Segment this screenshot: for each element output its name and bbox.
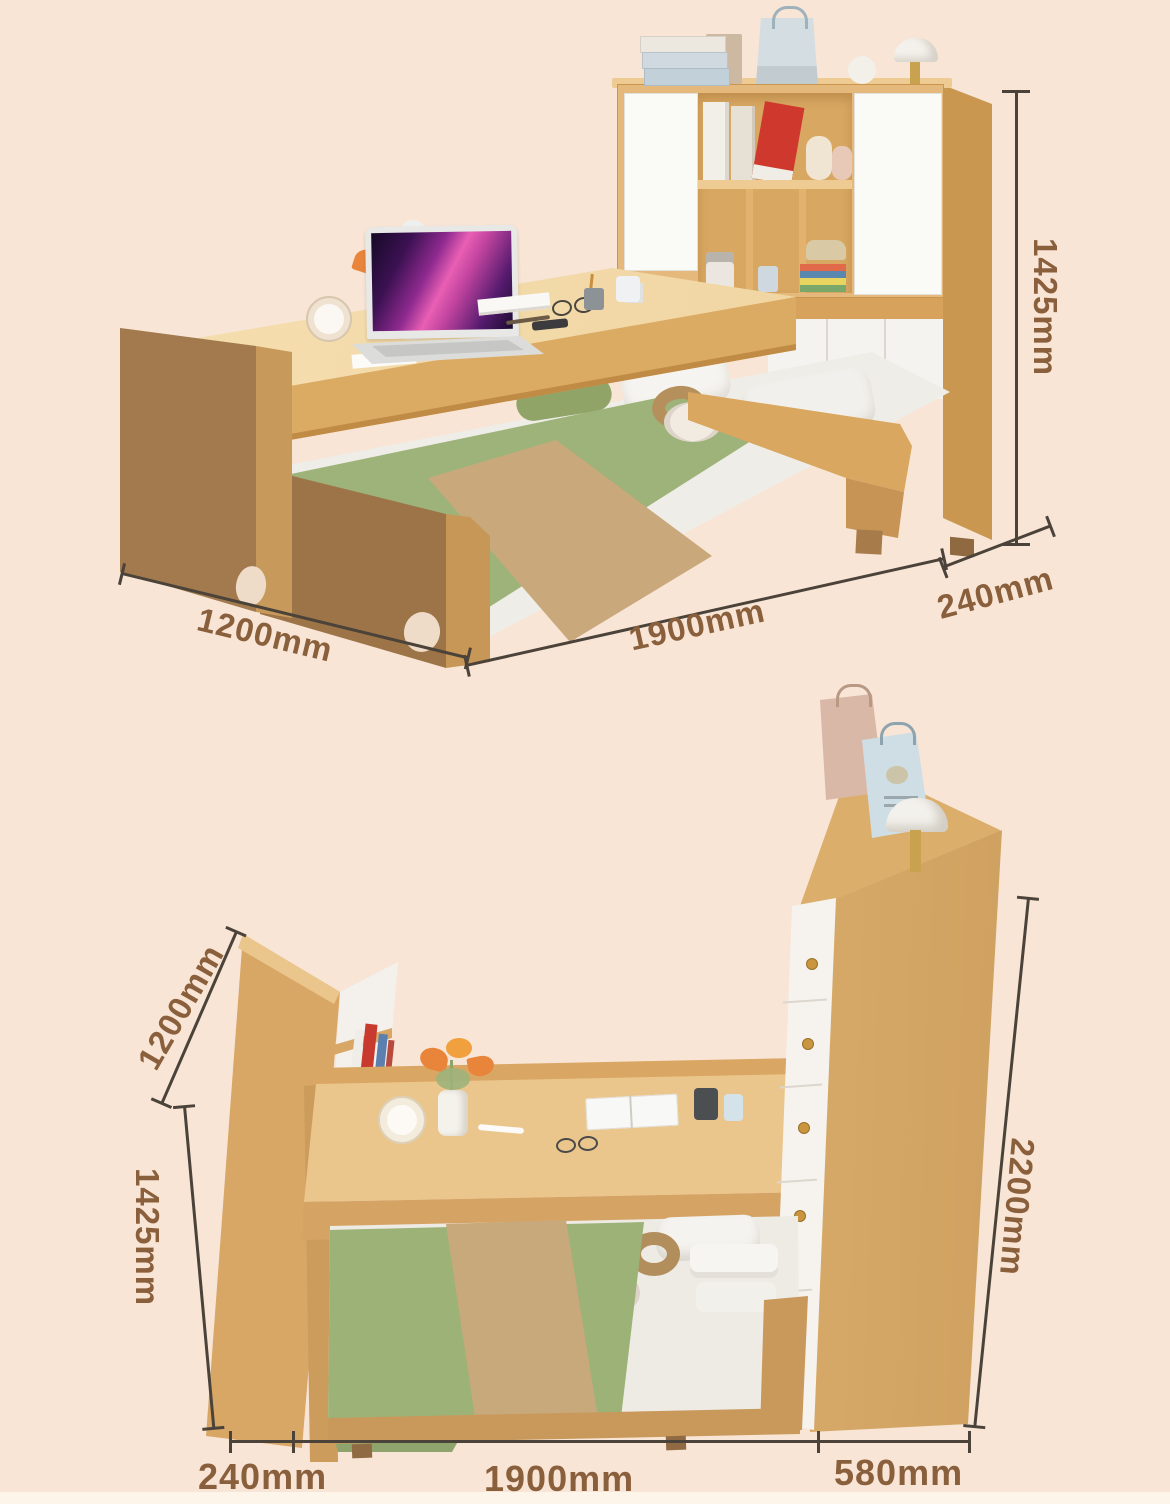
flower-leaves	[436, 1068, 470, 1090]
dimension-label-shelf-height: 1425mm	[128, 1168, 166, 1306]
flower-orange	[446, 1038, 472, 1058]
product-dimension-diagram: 1425mm 1200mm 1900mm 240mm	[0, 0, 1170, 1504]
book-stack-colorful	[800, 264, 846, 292]
clock-face	[314, 304, 344, 334]
drawer-knob	[798, 1122, 810, 1134]
dimension-tick	[292, 1431, 295, 1453]
lamp-stem	[910, 62, 920, 84]
gift-bag-handle	[836, 684, 872, 707]
bed-foot	[352, 1444, 372, 1459]
jar-dark	[694, 1088, 718, 1120]
laptop-wallpaper	[371, 231, 513, 331]
storage-box	[640, 36, 726, 53]
top-view-scene: 1425mm 1200mm 1900mm 240mm	[0, 0, 1170, 690]
bottom-view-scene: 1200mm 1425mm 2200mm 240mm 1900mm 580mm	[0, 690, 1170, 1504]
dimension-label-length: 1900mm	[626, 592, 769, 659]
book-stack-white	[703, 102, 729, 180]
book-beige	[731, 106, 755, 180]
shelf-divider	[746, 189, 753, 293]
clock-face	[387, 1105, 417, 1135]
mushroom-lamp	[894, 38, 938, 62]
drawer-knob	[806, 958, 818, 970]
jar-blue	[724, 1094, 743, 1121]
bookshelf-left-door	[624, 93, 698, 271]
toy-car	[806, 240, 846, 260]
cube-box-toy	[758, 266, 778, 292]
bed-foot-block	[855, 529, 882, 554]
storage-box	[644, 68, 730, 86]
doll-toy	[832, 146, 852, 180]
dimension-line-base	[230, 1440, 970, 1443]
storage-box	[642, 52, 728, 69]
pen-cup	[584, 288, 604, 310]
gift-bag-print	[886, 766, 908, 784]
dimension-label-height: 1425mm	[1026, 238, 1064, 376]
dimension-tick	[817, 1431, 820, 1453]
dimension-label-wardrobe-depth: 580mm	[834, 1452, 963, 1494]
drawer-knob	[802, 1038, 814, 1050]
dimension-label-depth: 240mm	[933, 559, 1058, 626]
dimension-line-shelf-height	[183, 1106, 215, 1429]
bunny-toy	[806, 136, 832, 180]
dimension-cap	[1002, 90, 1030, 93]
folded-towel	[690, 1244, 778, 1278]
footer-strip	[0, 1492, 1170, 1504]
gift-bag-handle	[772, 6, 808, 29]
ball-toy	[848, 56, 876, 84]
dimension-line-height	[1015, 92, 1018, 545]
bed-foot	[666, 1436, 686, 1451]
shelf-board	[698, 180, 852, 189]
mug	[616, 276, 640, 302]
flower-vase	[438, 1090, 468, 1136]
gift-bag-handle	[880, 722, 916, 745]
bookshelf-right-door	[854, 93, 942, 295]
lamp-stem	[910, 830, 921, 872]
